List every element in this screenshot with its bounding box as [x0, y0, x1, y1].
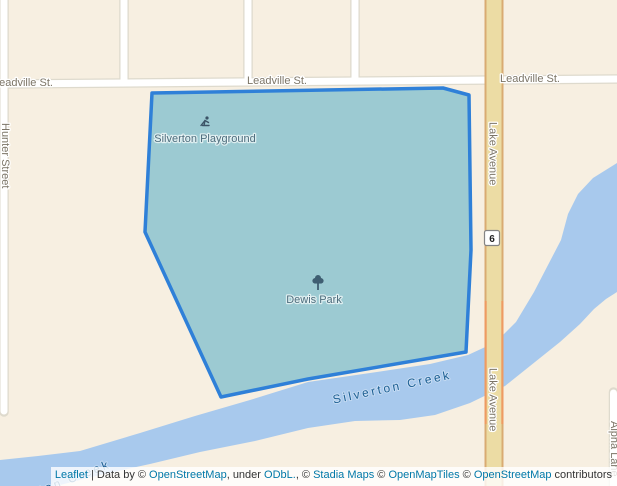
route-shield-number: 6 — [489, 234, 495, 245]
poi-label-dewis-park: Dewis Park — [286, 294, 342, 306]
attribution-bar: Leaflet | Data by © OpenStreetMap, under… — [51, 467, 617, 486]
poi-label-silverton-playground: Silverton Playground — [154, 133, 256, 145]
openstreetmap-link[interactable]: OpenStreetMap — [149, 469, 227, 481]
attribution-under: , under — [227, 469, 264, 481]
street-label-leadville-right: Leadville St. — [500, 73, 560, 85]
attribution-amp1: © — [374, 469, 388, 481]
street-label-lake-avenue-upper: Lake Avenue — [487, 122, 499, 185]
street-label-leadville-left: Leadville St. — [0, 77, 53, 89]
map-tiles: 6 Leadville St. Leadville St. Leadville … — [0, 0, 617, 486]
stadia-maps-link[interactable]: Stadia Maps — [313, 469, 374, 481]
attribution-prefix: Data by © — [97, 469, 149, 481]
odbl-link[interactable]: ODbL. — [264, 469, 296, 481]
attribution-mid: , © — [296, 469, 313, 481]
street-label-leadville-center: Leadville St. — [247, 75, 307, 87]
street-label-lake-avenue-lower: Lake Avenue — [487, 368, 499, 431]
attribution-amp2: © — [460, 469, 474, 481]
leaflet-link[interactable]: Leaflet — [55, 469, 88, 481]
street-label-hunter-street: Hunter Street — [0, 123, 11, 188]
route-shield: 6 — [485, 231, 500, 246]
attribution-suffix: contributors — [551, 469, 612, 481]
map-canvas[interactable]: 6 Leadville St. Leadville St. Leadville … — [0, 0, 617, 486]
attribution-separator: | — [88, 469, 97, 481]
openstreetmap-contributors-link[interactable]: OpenStreetMap — [474, 469, 552, 481]
openmaptiles-link[interactable]: OpenMapTiles — [388, 469, 459, 481]
